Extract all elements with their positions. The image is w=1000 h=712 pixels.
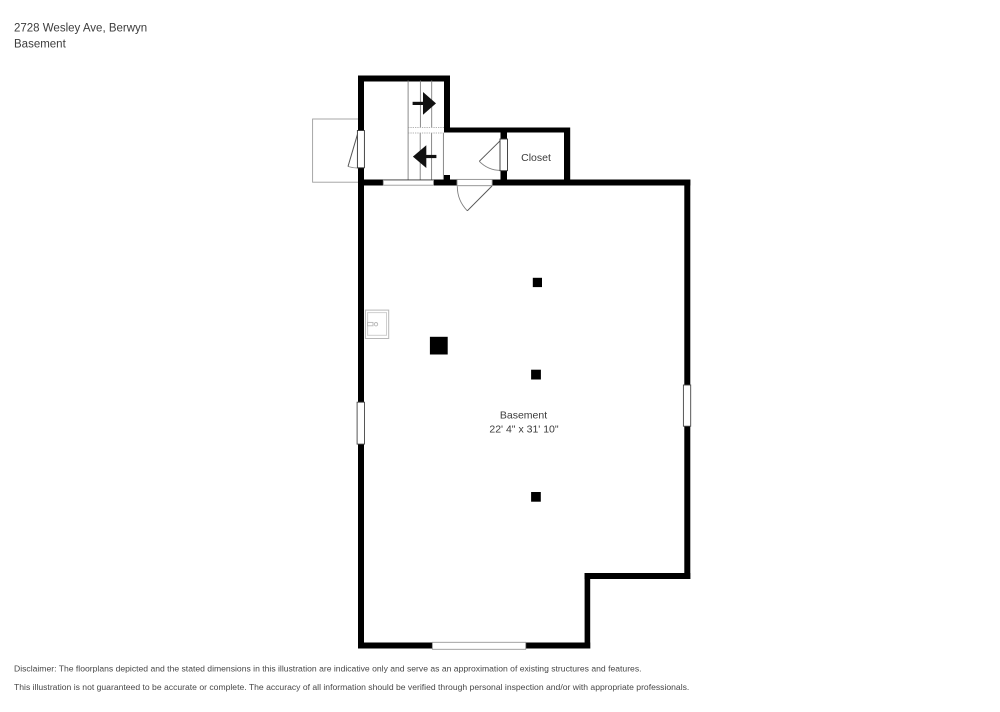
svg-text:Disclaimer: The floorplans dep: Disclaimer: The floorplans depicted and … (14, 664, 642, 674)
svg-text:Basement: Basement (500, 410, 547, 422)
svg-text:2728 Wesley Ave, Berwyn: 2728 Wesley Ave, Berwyn (14, 23, 147, 35)
svg-text:This illustration is not guara: This illustration is not guaranteed to b… (14, 682, 689, 692)
svg-text:Closet: Closet (521, 152, 551, 164)
svg-text:22' 4" x 31' 10": 22' 4" x 31' 10" (489, 423, 559, 435)
svg-text:Basement: Basement (14, 39, 67, 51)
